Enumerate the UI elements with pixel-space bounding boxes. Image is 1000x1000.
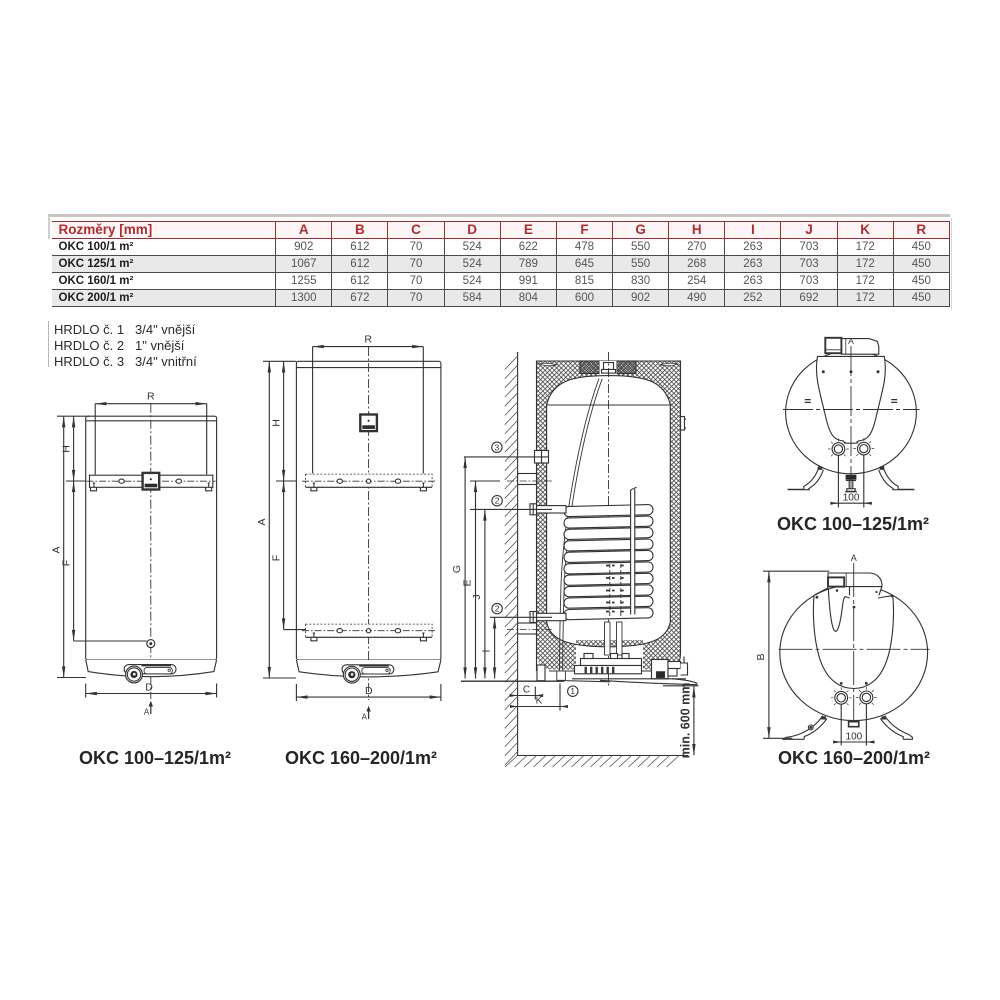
svg-text:B: B xyxy=(755,653,767,660)
svg-text:C: C xyxy=(523,684,530,695)
svg-text:100: 100 xyxy=(846,731,863,742)
svg-text:R: R xyxy=(364,334,372,346)
svg-text:100: 100 xyxy=(843,493,860,504)
svg-text:G: G xyxy=(451,565,463,573)
svg-text:A: A xyxy=(51,546,63,553)
svg-text:F: F xyxy=(270,555,282,561)
svg-text:K: K xyxy=(536,695,543,706)
svg-text:2: 2 xyxy=(495,604,500,614)
svg-text:A: A xyxy=(362,713,368,722)
svg-text:H: H xyxy=(270,419,282,427)
svg-text:3: 3 xyxy=(495,442,500,452)
svg-text:I: I xyxy=(481,650,493,653)
svg-text:A: A xyxy=(848,336,854,346)
svg-text:H: H xyxy=(61,445,73,453)
svg-text:A: A xyxy=(851,553,857,563)
svg-text:min. 600 mm: min. 600 mm xyxy=(679,683,693,759)
svg-text:1: 1 xyxy=(570,686,575,696)
svg-text:A: A xyxy=(144,708,150,717)
svg-text:R: R xyxy=(147,391,155,403)
svg-text:E: E xyxy=(461,579,473,586)
svg-text:D: D xyxy=(145,682,153,694)
svg-text:F: F xyxy=(61,560,73,566)
svg-text:J: J xyxy=(471,594,483,599)
svg-text:2: 2 xyxy=(495,496,500,506)
svg-text:A: A xyxy=(256,518,268,525)
svg-text:D: D xyxy=(365,685,373,697)
